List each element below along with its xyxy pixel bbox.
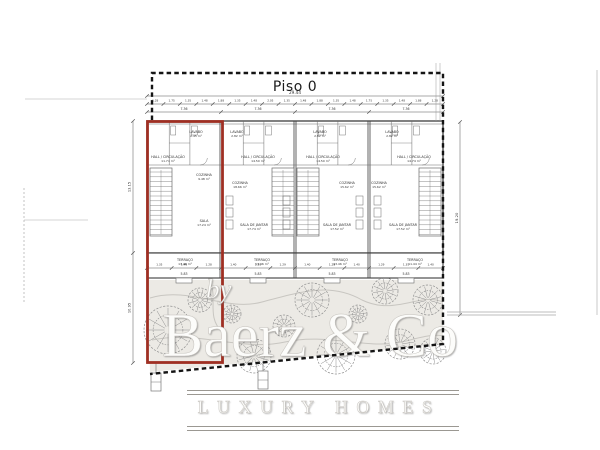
room-area: 17.24 m² <box>197 223 211 227</box>
room-area: 11.74 m² <box>161 159 175 163</box>
dim-value: 7.36 <box>180 107 187 111</box>
room-area: 14.74 m² <box>407 159 421 163</box>
room-label: COZINHA15.62 m² <box>371 181 387 189</box>
room-area: 17.52 m² <box>396 227 410 231</box>
dim-value: 19.20 <box>454 212 459 223</box>
watermark-brand: Baerz & Co <box>140 301 480 372</box>
dim-value: 1.28 <box>329 263 335 267</box>
dim-value: 1.88 <box>218 99 224 103</box>
dim-value: 5.83 <box>328 272 335 276</box>
dim-value: 1.88 <box>317 99 323 103</box>
dim-value: 7.36 <box>254 107 261 111</box>
room-area: 14.50 m² <box>251 159 265 163</box>
dim-value: 7.36 <box>402 107 409 111</box>
plan-sheet: HALL / CIRCULAÇÃO11.74 m²LAVABO2.45 m²CO… <box>0 0 600 450</box>
room-area: 15.62 m² <box>372 185 386 189</box>
building-outline <box>147 121 443 253</box>
terrace-steps <box>176 278 192 283</box>
room-label: COZINHA18.66 m² <box>232 181 248 189</box>
room-area: 9.48 m² <box>198 177 211 181</box>
dim-value: 1.40 <box>304 263 310 267</box>
dim-value: 1.29 <box>378 263 384 267</box>
dim-value: 1.35 <box>185 99 191 103</box>
dim-value: 1.28 <box>206 263 212 267</box>
room-area: 2.82 m² <box>314 134 327 138</box>
dim-value: 1.35 <box>255 263 261 267</box>
dim-value: 1.35 <box>333 99 339 103</box>
room-area: 17.52 m² <box>330 227 344 231</box>
dim-value: 1.28 <box>152 99 158 103</box>
dim-value: 1.35 <box>403 263 409 267</box>
room-area: 15.62 m² <box>340 185 354 189</box>
terrace-steps <box>324 278 340 283</box>
dim-value: 1.48 <box>251 99 257 103</box>
dim-value: 1.75 <box>169 99 175 103</box>
floor-plan-drawing: HALL / CIRCULAÇÃO11.74 m²LAVABO2.45 m²CO… <box>0 0 600 450</box>
staircase <box>150 168 172 236</box>
dim-value: 1.88 <box>415 99 421 103</box>
watermark-underline <box>187 426 459 431</box>
room-label: LAVABO2.82 m² <box>313 130 327 138</box>
room-area: 14.50 m² <box>316 159 330 163</box>
room-area: 18.66 m² <box>233 185 247 189</box>
dim-value: 1.48 <box>201 99 207 103</box>
dim-value: 5.83 <box>180 272 187 276</box>
dim-value: 1.75 <box>366 99 372 103</box>
room-area: 2.82 m² <box>386 134 399 138</box>
room-label: LAVABO2.45 m² <box>189 130 203 138</box>
terrace-steps <box>250 278 266 283</box>
dim-value: 7.36 <box>328 107 335 111</box>
room-area: 17.74 m² <box>247 227 261 231</box>
dim-value: 1.48 <box>399 99 405 103</box>
dim-value: 1.35 <box>284 99 290 103</box>
room-label: LAVABO2.82 m² <box>230 130 244 138</box>
dim-value: 10.95 <box>128 303 132 313</box>
dim-value: 1.48 <box>349 99 355 103</box>
dim-value: 2.05 <box>267 99 273 103</box>
dim-value: 5.83 <box>402 272 409 276</box>
dim-value: 5.83 <box>254 272 261 276</box>
staircase <box>297 168 319 236</box>
room-area: 2.45 m² <box>190 134 203 138</box>
watermark-underline <box>187 390 459 395</box>
staircase <box>419 168 441 236</box>
room-area: 11.44 m² <box>408 262 422 266</box>
dim-value: 1.29 <box>280 263 286 267</box>
dim-value: 1.48 <box>300 99 306 103</box>
dim-value: 1.35 <box>382 99 388 103</box>
watermark-tagline: LUXURY HOMES <box>150 397 480 418</box>
dim-value: 1.28 <box>432 99 438 103</box>
dim-value: 1.40 <box>230 263 236 267</box>
dim-value: 13.15 <box>128 182 132 192</box>
dim-value: 1.40 <box>181 263 187 267</box>
room-area: 13.46 m² <box>333 262 347 266</box>
terrace-steps <box>398 278 414 283</box>
dim-value: 1.35 <box>234 99 240 103</box>
room-area: 2.82 m² <box>231 134 244 138</box>
dim-value: 1.40 <box>428 263 434 267</box>
dim-value: 1.40 <box>354 263 360 267</box>
room-label: LAVABO2.82 m² <box>385 130 399 138</box>
plan-title: Piso 0 <box>147 79 443 95</box>
room-label: COZINHA15.62 m² <box>339 181 355 189</box>
dim-value: 1.35 <box>156 263 162 267</box>
